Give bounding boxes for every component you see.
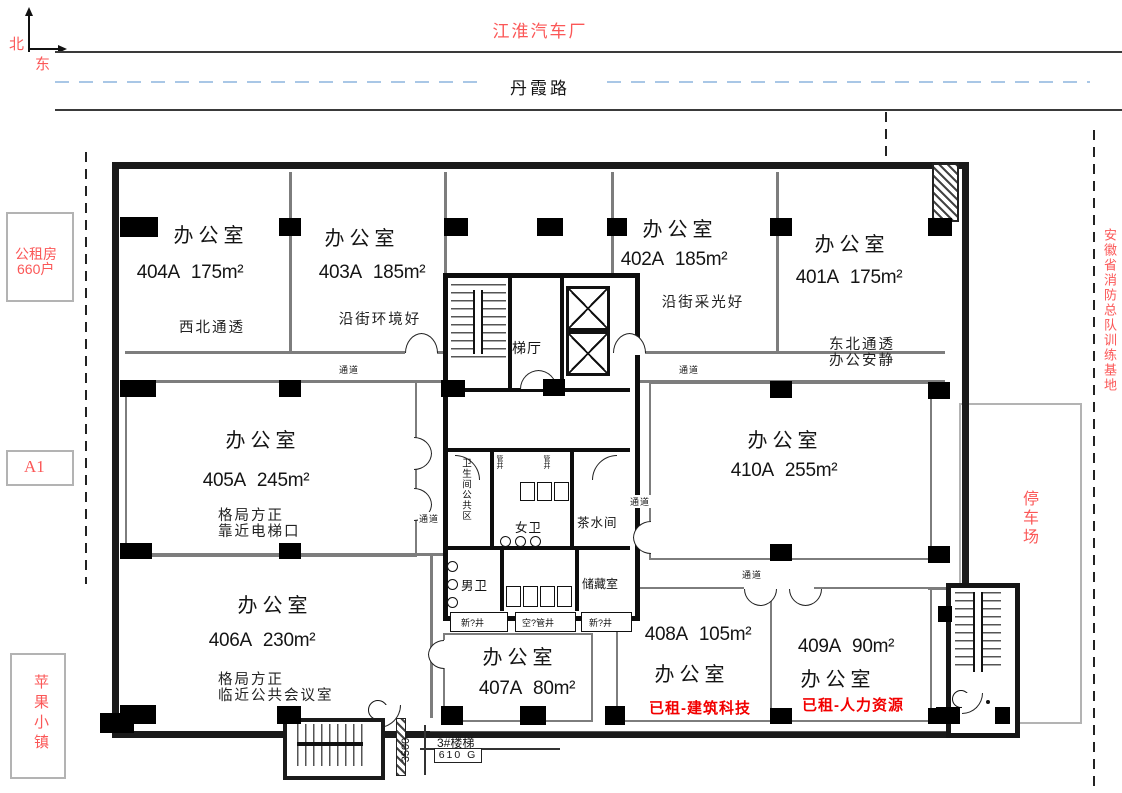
corridor-label: 通道 [678, 363, 700, 376]
column [537, 218, 563, 236]
tea-room-label: 茶水间 [577, 512, 618, 531]
floor-plan-canvas: 北 东 江淮汽车厂 丹霞路 公租房 660户 A1 苹果小镇 安徽省消防总队训练… [0, 0, 1122, 793]
room-402A-id-area: 402A185m² [594, 249, 754, 271]
room-406A-id-area: 406A230m² [182, 630, 342, 652]
sill-line-bottom [430, 731, 1010, 732]
room-408A-status: 已租-建筑科技 [620, 697, 780, 718]
column [605, 706, 625, 725]
room-409A-status: 已租-人力资源 [773, 694, 933, 715]
core-stair-wall [508, 278, 512, 390]
road-label: 丹霞路 [480, 74, 600, 99]
column [995, 707, 1010, 724]
urinal [447, 579, 458, 590]
column [279, 218, 301, 236]
room-401A-id-area: 401A175m² [769, 267, 929, 289]
parking-label: 停车场 [1016, 490, 1040, 547]
room-401A-id: 401A [796, 267, 839, 288]
toilet-zone-label: 卫生间公共区 [458, 458, 472, 521]
room-410A-id: 410A [731, 460, 774, 481]
compass: 北 东 [0, 0, 80, 80]
room-404A-area: 175m² [191, 262, 243, 283]
room-403A-id: 403A [319, 262, 362, 283]
elevator-shaft-2 [566, 331, 610, 376]
room-408A-id: 408A [645, 624, 688, 645]
elevator-hall-label: 梯厅 [512, 338, 542, 358]
room-408A-id-area: 408A105m² [618, 624, 778, 646]
apple-town-label: 苹果小镇 [30, 674, 51, 754]
shaft-label: 新?井 [461, 616, 484, 629]
room-406A-type: 办公室 [195, 589, 355, 618]
urinal [447, 597, 458, 608]
core-elevator-wall [560, 278, 564, 390]
elevator-shaft-1 [566, 286, 610, 331]
corridor-label: 通道 [741, 568, 763, 581]
corridor-label: 通道 [629, 495, 651, 508]
block-a1-label: A1 [24, 457, 45, 477]
column [770, 708, 792, 724]
column [444, 218, 468, 236]
room-409A-id: 409A [798, 636, 841, 657]
room-407A-id: 407A [479, 678, 522, 699]
room-405A-type: 办公室 [183, 424, 343, 453]
room-402A-desc: 沿街采光好 [623, 291, 783, 312]
room-402A-id: 402A [621, 249, 664, 270]
column [928, 218, 952, 236]
compass-east-axis [28, 48, 60, 50]
riser-label: 管井 [541, 455, 551, 469]
boundary-dash-left [85, 152, 87, 584]
road-edge-top [55, 51, 1122, 53]
room-401A-desc-2: 办公安静 [782, 349, 942, 370]
core-partition [570, 450, 574, 548]
column [441, 380, 465, 397]
sink [515, 536, 526, 547]
core-partition [490, 450, 494, 550]
partition [776, 172, 779, 352]
room-406A-area: 230m² [263, 630, 315, 651]
room-403A-type: 办公室 [282, 222, 442, 251]
room-404A-desc: 西北通透 [132, 316, 292, 337]
column [520, 706, 546, 725]
toilet-stall [554, 482, 569, 501]
room-409A-area: 90m² [852, 636, 894, 657]
men-toilet-label: 男卫 [461, 575, 488, 594]
boundary-dash-right [1093, 130, 1095, 793]
column [441, 706, 463, 725]
room-401A-type: 办公室 [772, 228, 932, 257]
column [120, 543, 152, 559]
toilet-stall [540, 586, 555, 607]
stair3-divider [297, 742, 363, 746]
room-404A-id: 404A [137, 262, 180, 283]
core-partition [500, 549, 504, 611]
room-408A-type: 办公室 [612, 658, 772, 687]
column [277, 706, 301, 724]
boundary-dash-top-right [885, 112, 887, 162]
room-405A-id-area: 405A245m² [176, 470, 336, 492]
public-housing-label-2: 660户 [17, 259, 54, 279]
core-partition [575, 549, 579, 611]
corridor-wall-south-of-410A [928, 587, 948, 590]
factory-label: 江淮汽车厂 [440, 17, 640, 42]
toilet-stall [506, 586, 521, 607]
urinal [447, 561, 458, 572]
room-409A-id-area: 409A90m² [766, 636, 926, 658]
core-toilet-top-wall [443, 448, 630, 452]
column [120, 217, 158, 237]
road-edge-bottom [55, 109, 1122, 111]
stair3-tag: 610 G [434, 748, 482, 763]
column [543, 379, 565, 396]
compass-north-arrowhead-icon [25, 7, 33, 16]
women-toilet-label: 女卫 [515, 517, 542, 536]
column [120, 380, 156, 397]
room-403A-area: 185m² [373, 262, 425, 283]
column [928, 382, 950, 399]
column [279, 380, 301, 397]
core-stair-stringer [473, 290, 483, 354]
corridor-label: 通道 [418, 512, 440, 525]
room-405A-id: 405A [203, 470, 246, 491]
stairwell-ne-stringer [973, 592, 983, 672]
public-housing-box: 公租房 660户 [6, 212, 74, 302]
room-401A-area: 175m² [850, 267, 902, 288]
column [936, 707, 960, 724]
corner-shaft-ne [932, 163, 959, 222]
room-407A-area: 80m² [533, 678, 575, 699]
room-405A-desc-2: 靠近电梯口 [218, 520, 301, 541]
column [770, 381, 792, 398]
column [928, 546, 950, 563]
room-405A-area: 245m² [257, 470, 309, 491]
toilet-stall [523, 586, 538, 607]
room-406A-right-wall [430, 555, 433, 718]
column [279, 543, 301, 559]
room-403A-desc: 沿街环境好 [300, 308, 460, 329]
riser-label: 管井 [494, 455, 504, 469]
compass-north-axis [28, 14, 30, 52]
sink [500, 536, 511, 547]
compass-east-label: 东 [35, 53, 50, 74]
toilet-stall [520, 482, 535, 501]
room-402A-area: 185m² [675, 249, 727, 270]
column [607, 218, 627, 236]
column [770, 218, 792, 236]
apple-town-box: 苹果小镇 [10, 653, 66, 779]
room-407A-id-area: 407A80m² [447, 678, 607, 700]
landing-dot [986, 700, 990, 704]
room-403A-id-area: 403A185m² [292, 262, 452, 284]
room-410A-area: 255m² [785, 460, 837, 481]
toilet-stall [537, 482, 552, 501]
room-409A-type: 办公室 [758, 663, 918, 692]
room-410A-type: 办公室 [705, 424, 865, 453]
column [938, 606, 952, 622]
column [770, 544, 792, 561]
room-410A-id-area: 410A255m² [704, 460, 864, 482]
storage-label: 储藏室 [582, 575, 618, 592]
toilet-stall [557, 586, 572, 607]
dim-3500-label: 3500 [400, 738, 412, 762]
shaft-label: 空?管井 [522, 616, 554, 629]
compass-north-label: 北 [9, 33, 24, 54]
room-406A-desc-2: 临近公共会议室 [218, 684, 334, 705]
shaft-label: 新?井 [589, 616, 612, 629]
room-404A-id-area: 404A175m² [110, 262, 270, 284]
block-a1-box: A1 [6, 450, 74, 486]
room-408A-area: 105m² [699, 624, 751, 645]
fire-base-label: 安徽省消防总队训练基地 [1100, 228, 1119, 393]
corridor-label: 通道 [338, 363, 360, 376]
dim-tick [424, 725, 426, 775]
room-407A-type: 办公室 [440, 641, 600, 670]
room-406A-id: 406A [209, 630, 252, 651]
column [100, 713, 134, 733]
sink [530, 536, 541, 547]
